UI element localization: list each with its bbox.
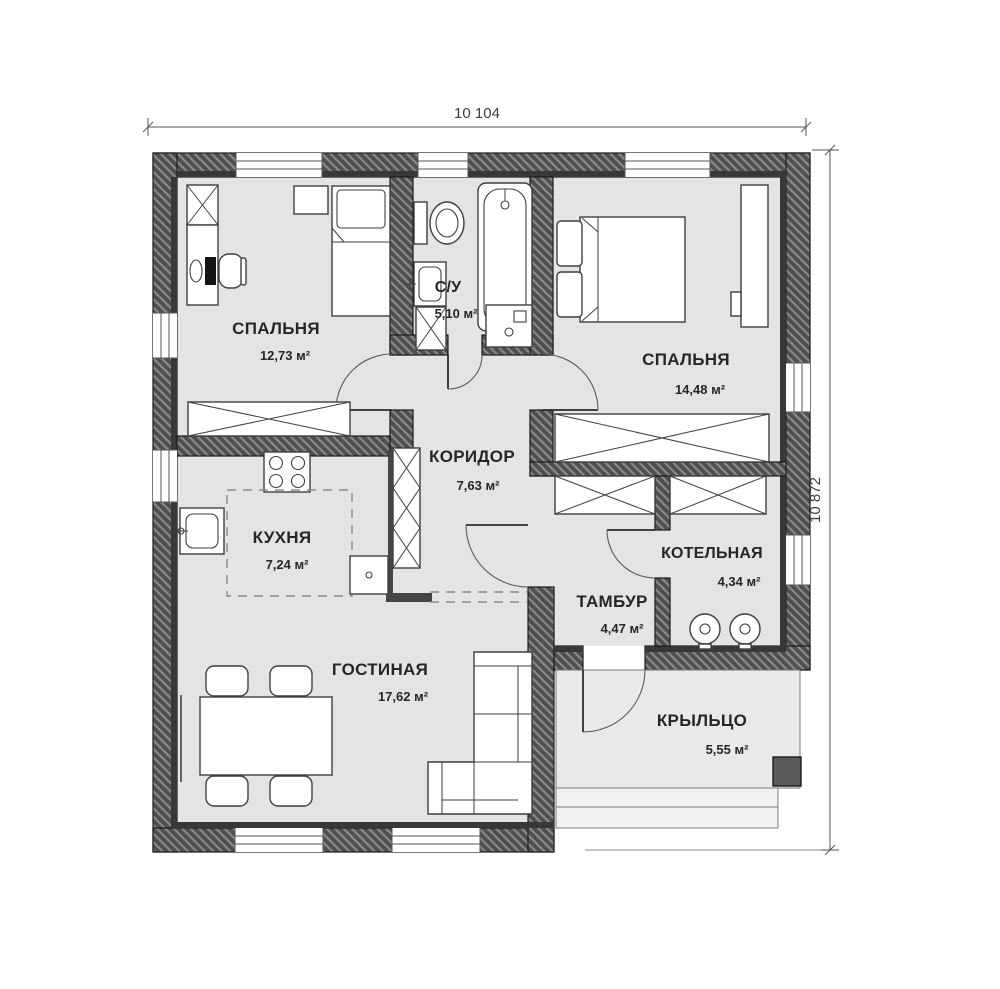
room-label-corridor: КОРИДОР [429,447,515,466]
kitchen-stove [264,452,310,492]
wardrobe [555,476,655,514]
washing-machine [486,305,532,347]
dining-table [200,697,332,775]
wall-bedroom1-bath [390,177,413,355]
room-label-bedroom-2: СПАЛЬНЯ [642,350,730,369]
chair [206,776,248,806]
kitchen-sink [176,508,224,554]
floor-plan-canvas: СПАЛЬНЯ 12,73 м² С/У 5,10 м² СПАЛЬНЯ 14,… [0,0,1000,989]
floor-plan-page: СПАЛЬНЯ 12,73 м² С/У 5,10 м² СПАЛЬНЯ 14,… [0,0,1000,989]
dimension-height-label: 10 872 [807,477,824,523]
room-label-living-room: ГОСТИНАЯ [332,660,428,679]
room-area-corridor: 7,63 м² [457,478,501,493]
monitor [205,257,216,285]
chair [206,666,248,696]
wall-bath-bedroom2 [530,177,553,355]
room-label-porch: КРЫЛЬЦО [657,711,747,730]
room-label-bathroom: С/У [435,279,462,296]
dimension-width: 10 104 [143,105,811,136]
wall-inner-band [780,177,786,646]
window [153,313,177,358]
wall-inner-band [177,822,554,828]
toilet [414,202,464,244]
window [786,363,810,412]
room-area-boiler-room: 4,34 м² [718,574,762,589]
window [392,828,480,852]
wall-bedroom2-bottom [530,462,786,476]
single-bed [332,186,390,316]
room-label-kitchen: КУХНЯ [253,528,312,547]
room-label-boiler-room: КОТЕЛЬНАЯ [661,545,763,562]
dimension-height: 10 872 [807,145,839,855]
room-label-vestibule: ТАМБУР [576,592,647,611]
wall-inner-band [645,646,786,652]
dimension-width-label: 10 104 [454,105,500,122]
room-area-living-room: 17,62 м² [378,689,429,704]
porch-step [556,788,778,807]
wall-stub [390,410,413,452]
porch-structure [556,670,836,850]
porch-step [556,807,778,828]
porch-column [773,757,801,786]
partition-kitchen-corridor [388,450,393,595]
window [786,535,810,585]
window [625,153,710,177]
wardrobe [670,476,766,514]
room-area-porch: 5,55 м² [706,742,750,757]
wardrobe [188,402,350,436]
shelving [393,448,420,568]
window [418,153,468,177]
window [153,450,177,502]
room-area-kitchen: 7,24 м² [266,557,310,572]
wall-vestibule-boiler-a [655,476,670,530]
wall-vestibule-boiler-b [655,578,670,646]
room-label-bedroom-1: СПАЛЬНЯ [232,319,320,338]
wardrobe [555,414,769,462]
nightstand [294,186,328,214]
wall-bottom-left [153,828,554,852]
room-area-bedroom-2: 14,48 м² [675,382,726,397]
fridge [350,556,388,594]
wall-inner-band [554,646,583,652]
window [236,153,322,177]
room-area-bathroom: 5,10 м² [435,306,479,321]
partition-stub [386,593,432,602]
room-area-vestibule: 4,47 м² [601,621,645,636]
office-chair [219,254,246,288]
window [235,828,323,852]
chair [270,666,312,696]
room-area-bedroom-1: 12,73 м² [260,348,311,363]
chair [270,776,312,806]
wardrobe [187,185,218,225]
